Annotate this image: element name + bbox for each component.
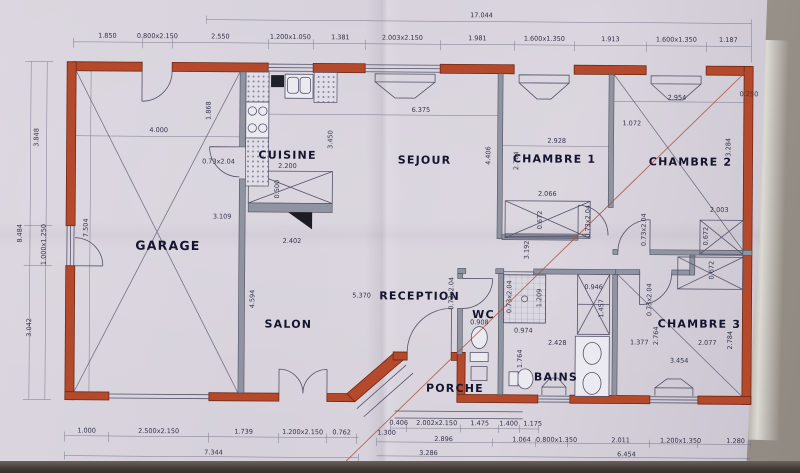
dim-door-ch1: 0.73x2.04 — [585, 205, 592, 238]
floorplan-photo: .w{fill:#b5492c;stroke:#6e2715;stroke-wi… — [0, 0, 800, 473]
dim-ch2-w: 2.954 — [668, 95, 687, 102]
dim-bm-1: 2.002x2.150 — [416, 420, 457, 427]
dim-bl-total: 7.344 — [204, 449, 223, 456]
dim-bcloset-w: 0.946 — [584, 284, 603, 291]
dim-bains-w: 2.428 — [548, 340, 567, 347]
room-label-sejour: SEJOUR — [398, 153, 452, 166]
dim-bm-0: 0.406 — [389, 420, 408, 427]
dim-bl-2: 1.739 — [234, 429, 253, 436]
dim-garage-h: 7.504 — [83, 218, 90, 237]
dim-top-9: 1.600x1.350 — [656, 37, 697, 44]
dim-left-0: 3.848 — [33, 128, 40, 147]
dim-bl-1: 2.500x2.150 — [138, 428, 179, 435]
room-label-chambre1: CHAMBRE 1 — [513, 152, 596, 166]
dim-top-3: 1.200x1.050 — [270, 34, 311, 41]
dim-wc-w: 0.908 — [470, 319, 489, 326]
dim-garage-diag: 3.109 — [213, 213, 232, 220]
dim-right-top: 0.250 — [740, 91, 759, 98]
dim-br-0: 2.896 — [434, 436, 453, 443]
dim-bm-total: 3.286 — [419, 450, 438, 457]
dim-ch3-closet-d: 0.672 — [708, 261, 715, 280]
dim-reception-w: 5.370 — [352, 292, 371, 299]
dim-bcloset-h: 1.457 — [598, 299, 605, 318]
plan-drawing: .w{fill:#b5492c;stroke:#6e2715;stroke-wi… — [0, 0, 800, 473]
dim-sejour-h: 4.406 — [485, 146, 492, 165]
dim-bm-2: 1.475 — [470, 420, 489, 427]
dim-top-1: 0.800x2.150 — [137, 33, 178, 40]
dim-closet1-w: 2.066 — [538, 191, 557, 198]
dim-island-d: 0.500 — [274, 180, 281, 199]
dim-bm-3: 1.400 — [499, 420, 518, 427]
dim-left-total: 8.484 — [17, 224, 24, 243]
dim-top-8: 1.913 — [601, 36, 620, 43]
dim-ch3-w: 2.077 — [698, 340, 717, 347]
dim-ch2-h: 3.284 — [725, 138, 732, 157]
dim-bl-4: 0.762 — [332, 429, 351, 436]
dim-br-4: 1.200x1.350 — [660, 438, 701, 445]
dim-salon-w: 2.402 — [283, 238, 302, 245]
dim-top-6: 1.981 — [468, 35, 487, 42]
dim-garage-w: 4.000 — [149, 127, 168, 134]
dim-closet1-d: 0.672 — [537, 211, 544, 230]
dim-total-top: 17.044 — [470, 12, 493, 19]
dim-ch3-d2: 2.764 — [653, 326, 660, 345]
dim-ch3-w2: 3.454 — [670, 358, 689, 365]
dim-top-2: 2.550 — [211, 33, 230, 40]
dim-bl-3: 1.200x2.150 — [282, 429, 323, 436]
dim-top-0: 1.850 — [98, 33, 117, 40]
roof-ridge-line — [336, 66, 749, 473]
room-label-porche: PORCHE — [426, 382, 484, 395]
dim-salon-h: 4.594 — [249, 290, 256, 309]
dim-ch2-stub: 1.072 — [622, 120, 641, 127]
dim-ch3-d1: 1.377 — [630, 339, 649, 346]
dim-top-7: 1.600x1.350 — [524, 36, 565, 43]
dim-br-2: 0.800x1.350 — [536, 437, 577, 444]
dim-bl-5: 1.300 — [377, 430, 396, 437]
dim-bl-0: 1.000 — [77, 428, 96, 435]
room-label-garage: GARAGE — [135, 238, 200, 253]
dim-sejour-w: 6.375 — [412, 107, 431, 114]
dim-door-ch3: 0.73x2.04 — [646, 283, 653, 316]
dim-br-5: 1.280 — [726, 438, 745, 445]
floor-plan: .w{fill:#b5492c;stroke:#6e2715;stroke-wi… — [0, 0, 800, 473]
room-label-chambre3: CHAMBRE 3 — [658, 317, 741, 331]
dim-br-3: 2.011 — [611, 437, 630, 444]
dim-door-cuisine: 0.73x2.04 — [202, 158, 235, 165]
dim-island-w: 2.200 — [278, 163, 297, 170]
dim-ch2-closet-d: 0.672 — [703, 227, 710, 246]
dim-shower-w: 0.974 — [514, 328, 533, 335]
dim-hall-h: 3.192 — [524, 241, 531, 260]
dim-top-10: 1.187 — [719, 37, 738, 44]
dim-top-5: 2.003x2.150 — [382, 35, 423, 42]
dim-left-1: 1.000x1.250 — [41, 224, 48, 265]
room-label-bains: BAINS — [534, 370, 578, 383]
dim-door-bains: 0.73x2.04 — [506, 280, 513, 313]
dim-br-1: 1.064 — [512, 437, 531, 444]
dim-ch1-h: 2.764 — [513, 151, 520, 170]
room-label-salon: SALON — [265, 318, 313, 331]
dim-ch1-w: 2.928 — [547, 138, 566, 145]
interior-walls — [238, 72, 753, 397]
dim-top-4: 1.381 — [331, 34, 350, 41]
dim-bm-4: 1.175 — [523, 421, 542, 428]
dim-br-total: 6.454 — [617, 451, 636, 458]
dim-ch2-closet: 2.003 — [710, 207, 729, 214]
dim-door-wc: 0.73x2.04 — [448, 277, 455, 310]
dim-cuisine-h: 3.450 — [327, 130, 334, 149]
room-label-cuisine: CUISINE — [258, 149, 316, 162]
dim-shower-h: 1.209 — [536, 289, 543, 308]
room-label-chambre2: CHAMBRE 2 — [649, 155, 732, 169]
dim-ch3-h: 2.784 — [727, 331, 734, 350]
dim-door-ch2: 0.73x2.04 — [641, 213, 648, 246]
dim-bains-h: 1.764 — [517, 350, 524, 369]
table-surface — [0, 461, 800, 473]
dim-cuisine-counter: 1.868 — [206, 101, 213, 120]
dim-left-2: 3.042 — [26, 318, 33, 337]
